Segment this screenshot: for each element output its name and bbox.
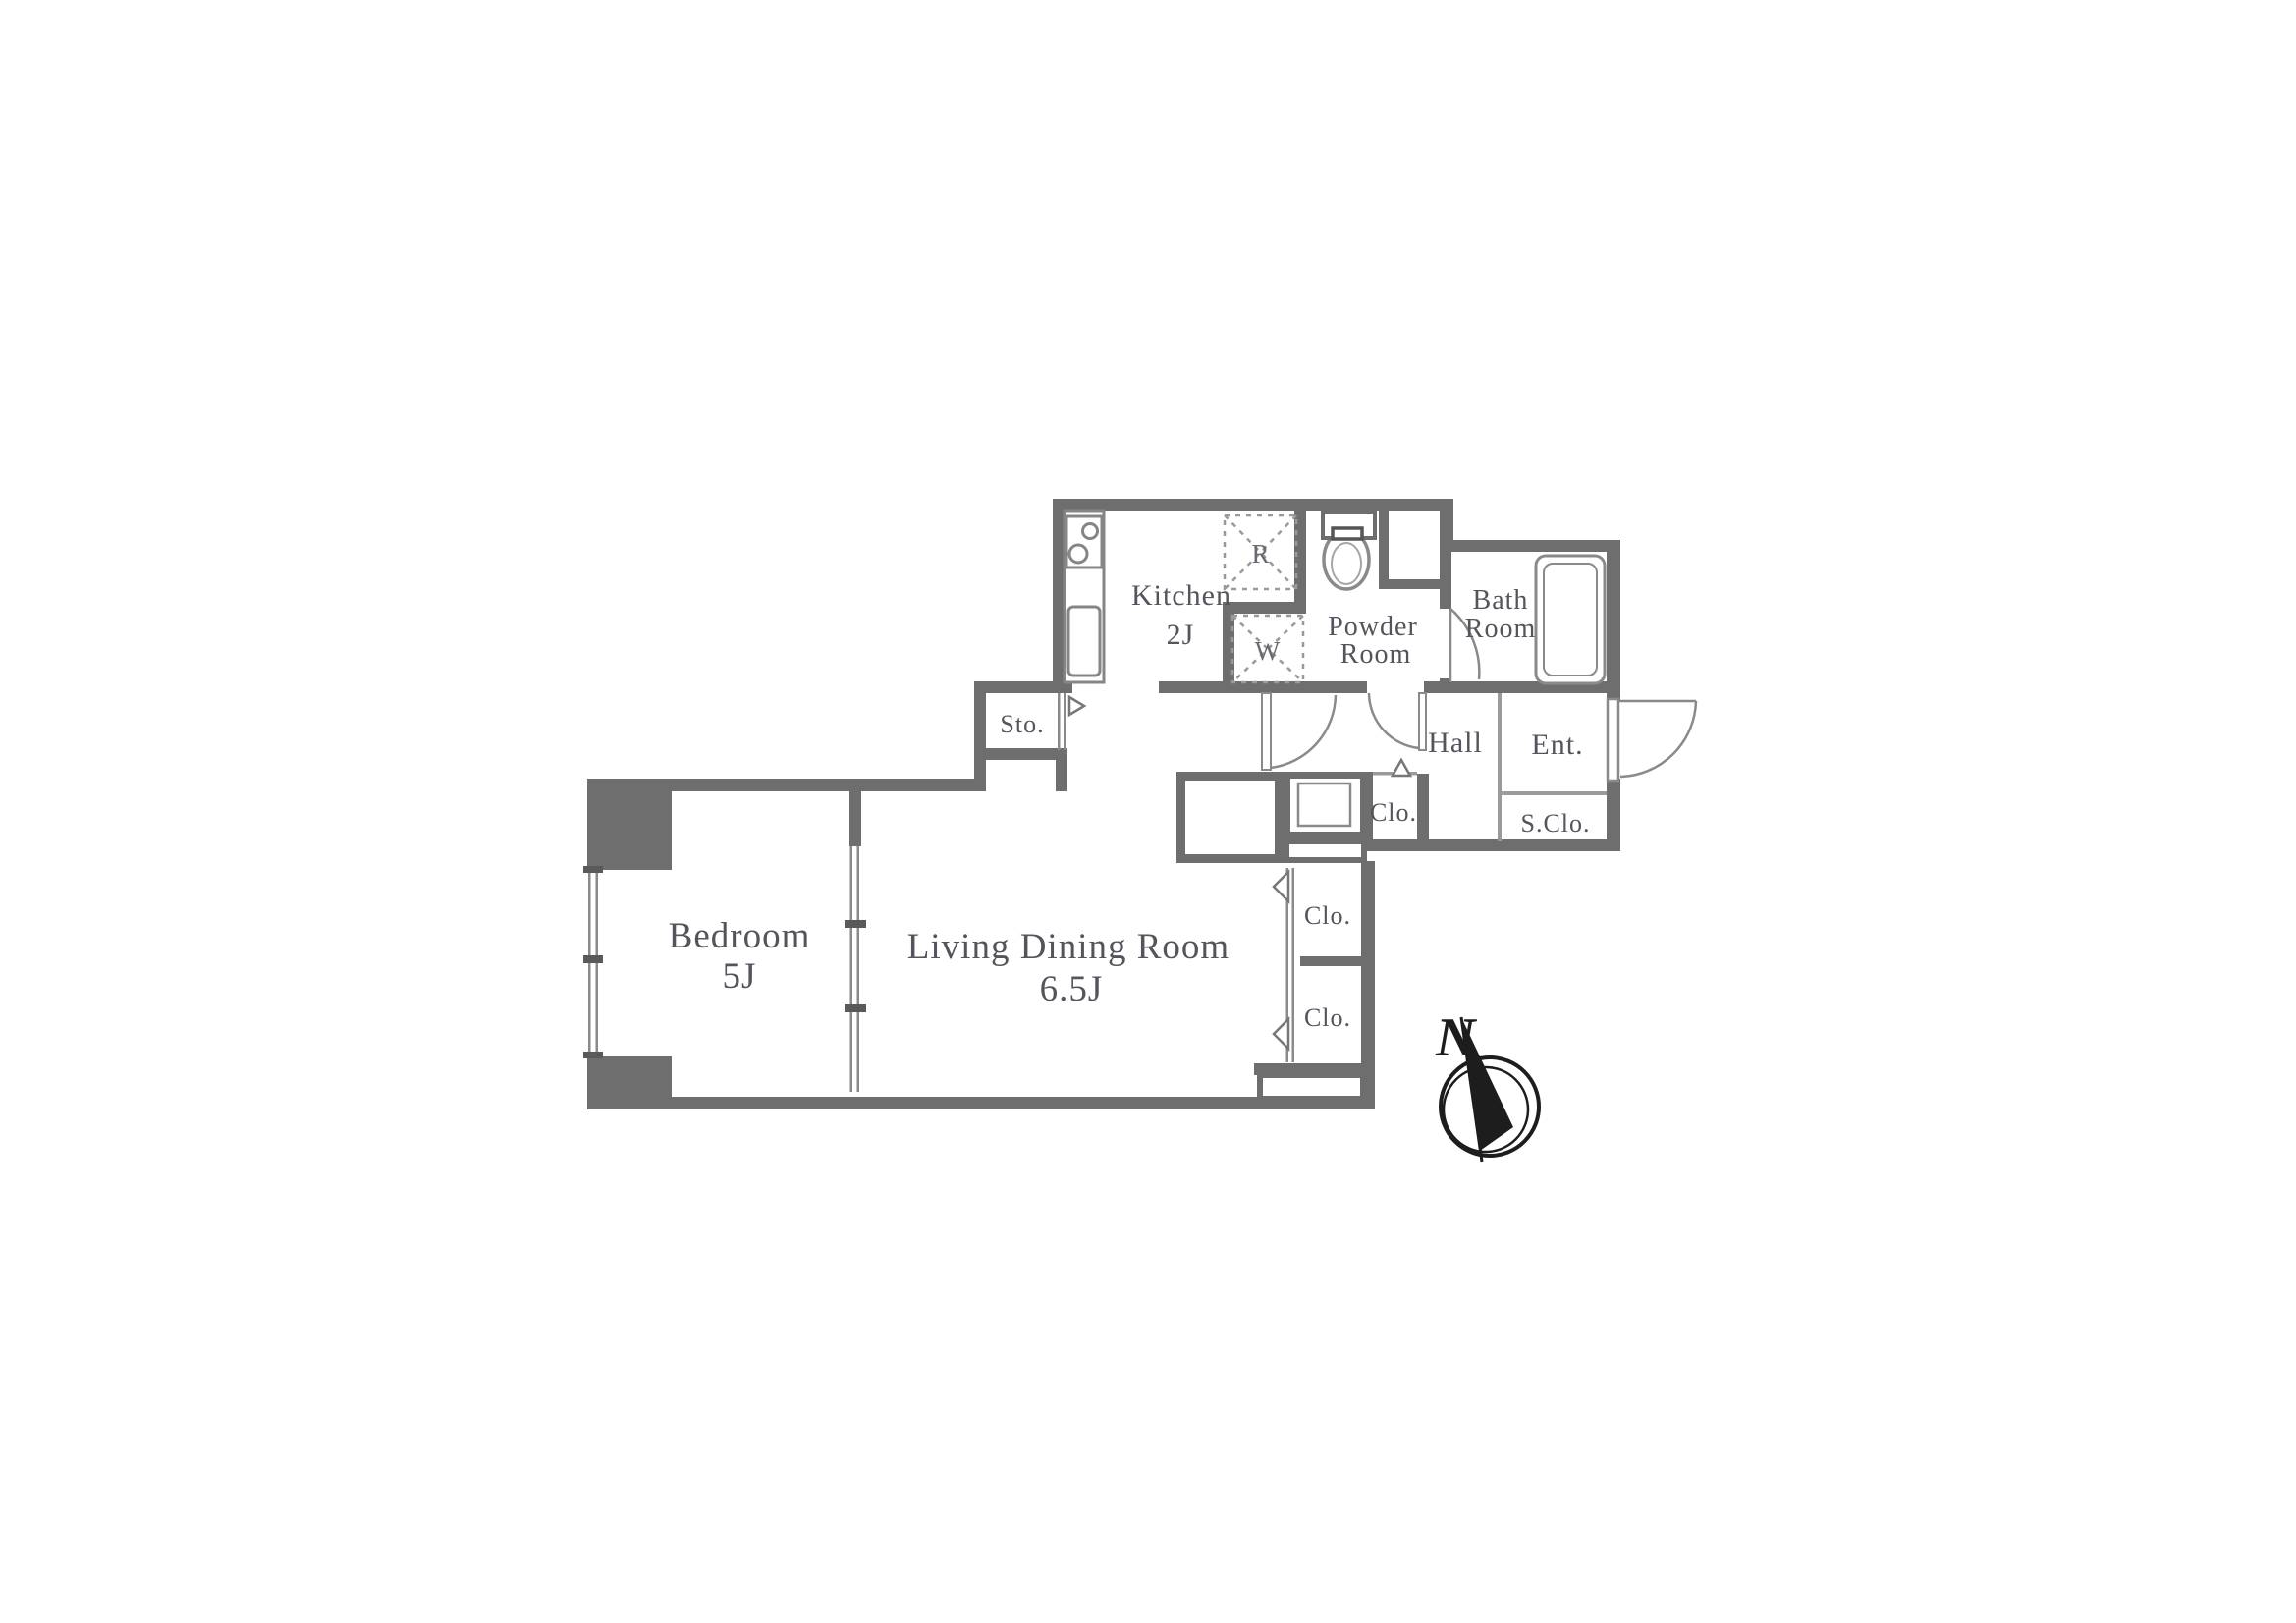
powder-room-label-1: Powder — [1328, 612, 1418, 642]
floor-plan-page: N Bedroom 5J Living Dining Room 6.5J Kit… — [0, 0, 2296, 1623]
bedroom-label: Bedroom — [669, 916, 811, 956]
cabinet-counter — [1176, 772, 1367, 863]
closet-door-marker-icon — [1393, 760, 1410, 776]
burner-icon — [1069, 545, 1087, 563]
bathtub-icon — [1536, 556, 1605, 683]
storage-label: Sto. — [1000, 710, 1044, 738]
kitchen-sink-icon — [1068, 607, 1100, 676]
living-dining-area-label: 6.5J — [1040, 969, 1104, 1009]
compass-north-label: N — [1435, 1007, 1478, 1068]
compass-icon: N — [1435, 1007, 1539, 1162]
bedroom-window — [583, 866, 603, 1058]
living-room-door — [1262, 693, 1336, 770]
burner-icon — [1083, 524, 1098, 539]
floor-plan-drawing: N Bedroom 5J Living Dining Room 6.5J Kit… — [0, 0, 2296, 1623]
bedroom-area-label: 5J — [723, 956, 757, 997]
refrigerator-label: R — [1251, 539, 1270, 568]
closet-door-marker-icon — [1274, 1019, 1288, 1049]
kitchen-area-label: 2J — [1167, 619, 1195, 651]
hall-label: Hall — [1428, 727, 1483, 759]
living-dining-label: Living Dining Room — [907, 927, 1230, 967]
shoe-closet-label: S.Clo. — [1520, 809, 1590, 838]
closet-bifold-doors — [1274, 868, 1294, 1062]
powder-room-label-2: Room — [1340, 639, 1411, 670]
powder-room-door — [1369, 693, 1426, 750]
entrance-label: Ent. — [1531, 729, 1583, 761]
storage-door-marker-icon — [1069, 697, 1084, 715]
hall-closet-label: Clo. — [1370, 798, 1417, 827]
hall-closet-door — [1373, 760, 1417, 776]
sliding-partition — [845, 846, 866, 1092]
toilet-icon — [1323, 512, 1375, 589]
closet-door-marker-icon — [1274, 872, 1288, 901]
closet-upper-label: Clo. — [1304, 901, 1351, 930]
closet-lower-label: Clo. — [1304, 1003, 1351, 1032]
kitchen-label: Kitchen — [1131, 579, 1231, 612]
bath-room-label-1: Bath — [1473, 585, 1529, 616]
washer-label: W — [1255, 636, 1281, 666]
storage-door — [1058, 693, 1084, 750]
step-ledge — [1260, 1075, 1363, 1099]
kitchen-counter — [1065, 511, 1104, 682]
entry-door — [1608, 699, 1696, 781]
washer-pan-icon — [1298, 784, 1350, 826]
bath-room-label-2: Room — [1465, 614, 1536, 644]
